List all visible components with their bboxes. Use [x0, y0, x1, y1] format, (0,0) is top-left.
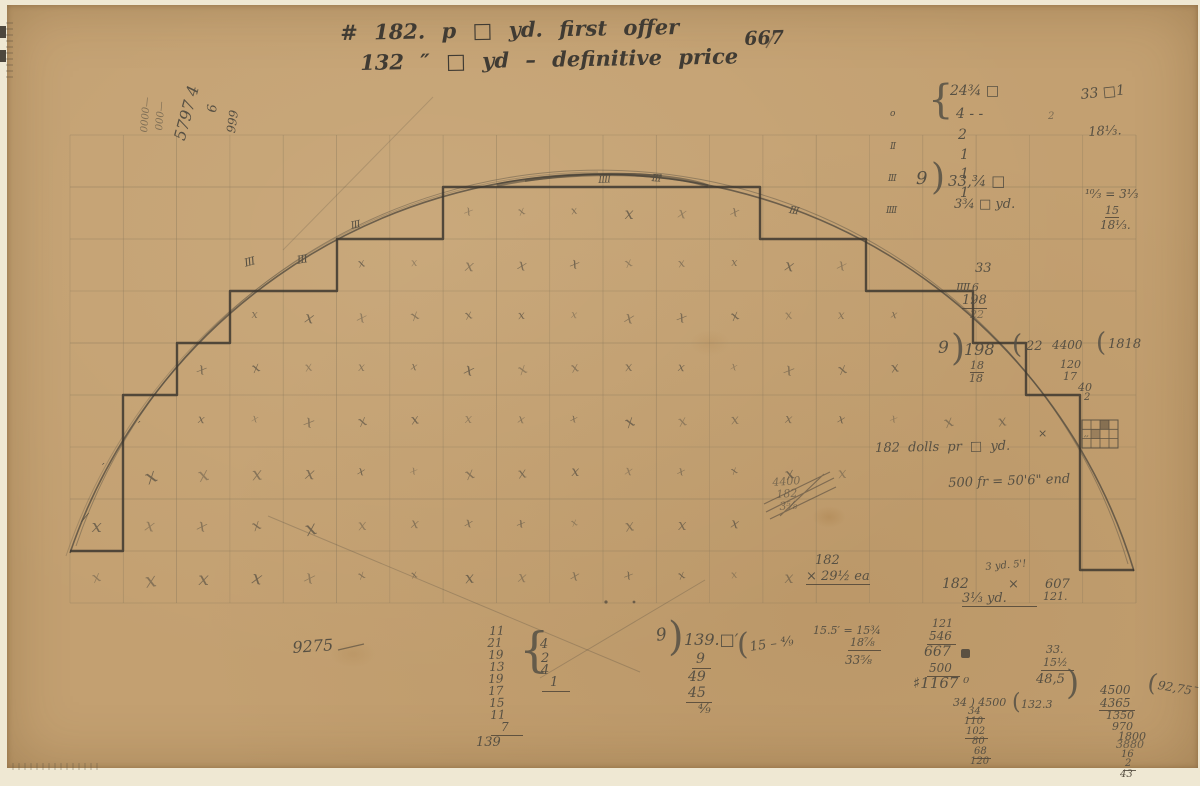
note-18third-2: 18⅓. — [1100, 219, 1131, 231]
division-dividend: 139.□′ — [684, 632, 738, 648]
times-sign: × — [1008, 578, 1019, 591]
division-work: 18 — [969, 373, 983, 384]
cell-x-mark: x — [304, 464, 315, 485]
note-33: 33 — [975, 262, 992, 275]
rotated-note: 6 — [206, 104, 220, 113]
stack-121: 121 — [932, 618, 953, 629]
tally-sum-line: 24¾ □ — [950, 84, 999, 98]
note-fraction-eq: ¹⁰⁄₃ = 3⅓ — [1085, 188, 1138, 200]
division-paren: ) — [668, 617, 684, 657]
underline-stroke — [338, 644, 364, 650]
cell-x-mark: x — [677, 360, 685, 375]
sum-total-139: 139 — [476, 736, 501, 749]
note-dollars-per-yd: 182 dolls pr □ yd. — [875, 440, 1010, 455]
note-9275: 9275 — [292, 637, 334, 656]
tally-col-mark: o — [890, 110, 894, 119]
cell-x-mark: x — [785, 568, 794, 587]
cell-x-mark: x — [357, 516, 367, 535]
cell-x-mark: x — [198, 412, 206, 427]
tally-col-mark: IIII — [886, 207, 896, 216]
cell-x-mark: x — [784, 412, 793, 428]
note-tally6: IIII 6 — [956, 282, 978, 293]
division-work: 49 — [688, 670, 706, 684]
note-22-light: 22 — [970, 309, 984, 320]
division-work: 9 — [692, 652, 711, 669]
division-work: ⁴⁄₉ — [698, 703, 711, 716]
division-paren: ) — [1066, 666, 1079, 700]
edge-cell-mark: ⁄ — [84, 512, 86, 524]
division-divisor: 9 — [916, 170, 927, 188]
paren: ( — [1012, 332, 1022, 358]
stepped-outline-right — [601, 187, 1134, 570]
note-22: 22 — [1026, 340, 1043, 353]
note-120: 120 — [1060, 359, 1081, 370]
x-mark-near-doodle: × — [1038, 428, 1047, 439]
division-result: 33,¾ □ — [948, 174, 1005, 189]
cell-x-mark: x — [731, 256, 737, 269]
cell-x-mark: x — [92, 516, 102, 537]
stack-total-1167: ♯1167 ⁰ — [913, 676, 969, 691]
arc-tally: III — [788, 206, 798, 217]
tally-col-mark: III — [888, 175, 896, 184]
edge-cell-mark: ′ — [138, 420, 141, 431]
rotated-note: 999 — [225, 109, 240, 133]
cell-x-mark: x — [252, 308, 258, 321]
note-1818: 1818 — [1108, 338, 1141, 351]
paren: ( — [1096, 330, 1106, 356]
cell-x-mark: x — [517, 568, 527, 587]
note-4500: 4500 — [1100, 684, 1131, 696]
note-485: 48,5 — [1036, 673, 1065, 686]
cell-x-mark: x — [837, 464, 847, 483]
note-33dot: 33. — [1046, 644, 1064, 655]
note-182: 182 — [815, 554, 840, 567]
note-198: 198 — [962, 294, 987, 309]
note-29half: × 29½ ea — [806, 570, 870, 585]
cell-x-mark: x — [464, 256, 475, 276]
cell-x-mark: x — [678, 516, 686, 534]
cell-x-mark: x — [251, 464, 263, 486]
note-182b: 182 — [942, 577, 969, 591]
arc-tally: III — [350, 220, 361, 232]
division-work: 43 — [1120, 770, 1133, 780]
note-2: 2 — [1084, 393, 1090, 403]
note-4400: 4400 — [1052, 339, 1083, 351]
note-3third-yd: 3⅓ yd. — [962, 592, 1037, 607]
cell-x-mark: x — [838, 308, 845, 322]
pencil-speck — [633, 601, 636, 604]
note-18third: 18⅓. — [1088, 124, 1122, 139]
title-first-offer: # 182. p □ yd. first offer — [340, 16, 679, 43]
cell-x-mark: x — [465, 412, 472, 427]
note-121: 121. — [1043, 591, 1068, 602]
division-paren: ) — [951, 331, 965, 367]
tally-sum-line: 2 — [958, 128, 967, 142]
division-dividend: 198 — [964, 342, 995, 358]
note-155: 15.5′ = 15¾ — [813, 625, 881, 636]
sum-row: 7 — [491, 721, 523, 736]
struck-calc: 3⅝ — [779, 500, 797, 512]
edge-cell-mark: ′ — [102, 462, 105, 473]
title-definitive-price: 132 ″ □ yd – definitive price — [360, 45, 738, 73]
note-33fiveeighth: 33⅝ — [845, 654, 872, 666]
arc-tally: IIII — [598, 175, 610, 186]
cell-x-mark: x — [464, 568, 475, 588]
cell-x-mark: x — [358, 360, 365, 374]
note-15: 15 — [1105, 205, 1119, 218]
cell-x-mark: x — [571, 464, 579, 480]
cell-x-mark: x — [624, 360, 633, 376]
tally-sum-line: 1 — [960, 148, 969, 162]
stack-546: 546 — [927, 630, 956, 645]
arc-tally: III — [296, 253, 308, 266]
arc-tally: III — [651, 174, 661, 185]
stack-667: 667 — [924, 645, 951, 659]
paren: ( — [1012, 692, 1021, 714]
brace-digit: 4 — [540, 638, 548, 651]
cell-x-mark: x — [517, 308, 525, 323]
pencil-speck — [604, 600, 607, 603]
small-digit: 2 — [1048, 112, 1054, 122]
brace-digit: 1 — [542, 676, 570, 692]
division-work: 120 — [970, 757, 989, 767]
tally-sum-line: 4 - - — [956, 107, 983, 121]
cell-x-mark: x — [625, 204, 634, 223]
note-17: 17 — [1063, 371, 1077, 382]
division-divisor: 9 — [938, 340, 949, 357]
note-187eighth: 18⅞ — [848, 637, 881, 651]
division-paren: ) — [931, 160, 945, 196]
pencil-blob — [961, 649, 970, 658]
division-result-yd: 3¾ □ yd. — [954, 198, 1015, 211]
cell-x-mark: x — [198, 568, 209, 590]
title-667: 667 — [744, 29, 784, 49]
scanned-sketch-sheet: xxxxxxxxxxxxxxxxxxxxxxxxxxxxxxxxxxxxxxxx… — [0, 0, 1200, 786]
division-work: 45 — [686, 686, 712, 703]
edge-cell-mark: ′′ — [1084, 436, 1089, 446]
paren: ( — [737, 630, 749, 660]
cell-x-mark: x — [731, 412, 740, 429]
division-quotient: 132.3 — [1021, 699, 1053, 710]
tally-col-mark: II — [890, 143, 895, 152]
division-divisor: 9 — [655, 626, 668, 644]
